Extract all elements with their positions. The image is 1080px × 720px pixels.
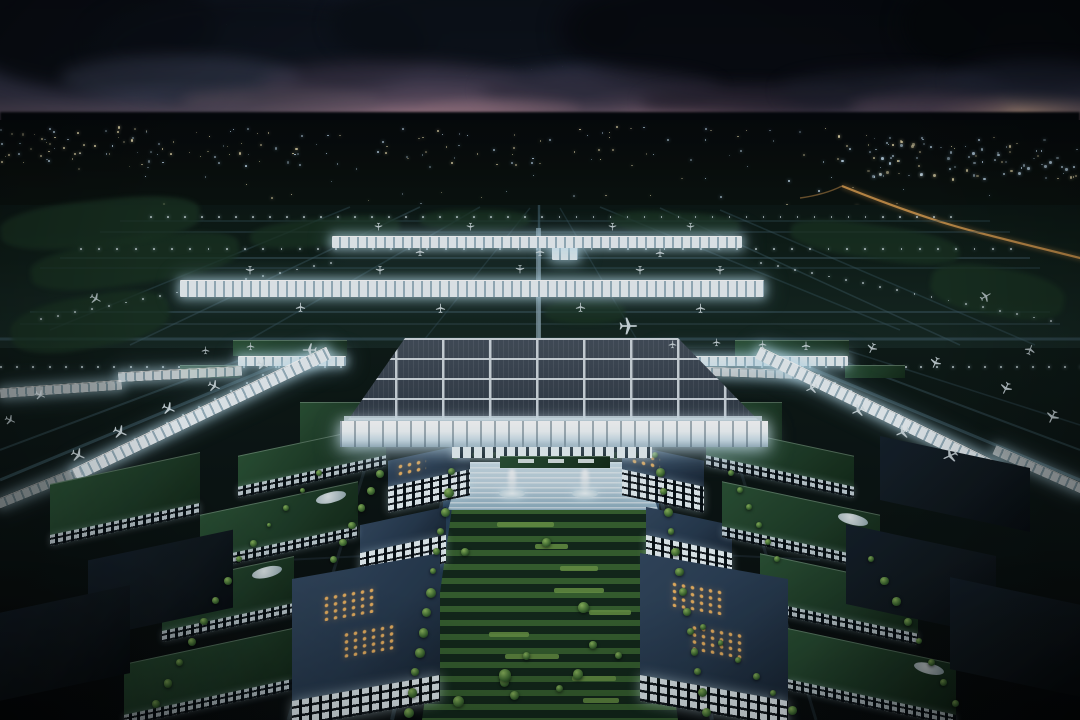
- apron-edge-light: [445, 248, 447, 250]
- pavilion-skylight: [578, 459, 594, 463]
- aircraft-icon: [201, 346, 210, 355]
- city-light: [896, 203, 898, 205]
- city-light: [890, 157, 892, 159]
- hedge-block: [505, 654, 559, 659]
- boulevard-tree: [367, 487, 375, 495]
- city-light: [402, 128, 404, 130]
- apron-edge-light: [473, 216, 475, 218]
- city-light: [831, 177, 832, 178]
- city-light: [533, 175, 534, 176]
- apron-edge-light: [1050, 320, 1052, 322]
- apron-edge-light: [1016, 313, 1018, 315]
- boulevard-tree: [928, 659, 935, 666]
- apron-edge-light: [81, 366, 83, 368]
- city-light: [49, 128, 51, 130]
- hedge-block: [560, 566, 598, 571]
- city-light: [1044, 165, 1046, 167]
- city-light: [532, 158, 533, 159]
- city-light: [287, 161, 289, 163]
- city-light: [146, 131, 147, 132]
- boulevard-tree: [765, 539, 771, 545]
- city-light: [46, 142, 47, 143]
- apron-edge-light: [576, 216, 578, 218]
- city-light: [973, 174, 975, 176]
- apron-edge-light: [761, 366, 763, 368]
- garden-tree: [499, 669, 512, 682]
- city-light: [837, 158, 838, 159]
- aircraft-icon: [415, 247, 425, 257]
- city-light: [612, 149, 614, 151]
- city-light: [112, 145, 113, 146]
- city-light: [425, 151, 427, 153]
- apron-edge-light: [773, 248, 775, 250]
- apron-edge-light: [1010, 248, 1012, 250]
- apron-edge-light: [916, 216, 918, 218]
- apron-edge-light: [982, 306, 984, 308]
- apron-edge-light: [153, 248, 155, 250]
- boulevard-tree: [679, 588, 687, 596]
- city-light: [511, 162, 513, 164]
- city-light: [260, 144, 262, 146]
- boulevard-tree: [419, 628, 429, 638]
- city-light: [609, 132, 610, 133]
- apron-edge-light: [371, 216, 373, 218]
- apron-edge-light: [130, 366, 132, 368]
- city-light: [420, 203, 421, 204]
- apron-edge-light: [644, 216, 646, 218]
- boulevard-tree: [940, 679, 947, 686]
- airport-night-render: [0, 0, 1080, 720]
- city-light: [838, 135, 840, 137]
- cloud: [180, 88, 380, 114]
- apron-edge-light: [439, 216, 441, 218]
- apron-edge-light: [841, 366, 843, 368]
- boulevard-tree: [892, 597, 901, 606]
- city-light: [74, 153, 75, 154]
- aircraft-icon: [715, 265, 725, 275]
- apron-edge-light: [184, 216, 186, 218]
- city-light: [976, 175, 979, 178]
- apron-edge-light: [337, 216, 339, 218]
- boulevard-tree: [200, 618, 208, 626]
- apron-edge-light: [57, 315, 59, 317]
- apron-edge-light: [919, 248, 921, 250]
- city-light: [214, 156, 216, 158]
- aircraft-icon: [295, 302, 306, 313]
- city-light: [788, 180, 789, 181]
- apron-edge-light: [846, 248, 848, 250]
- city-light: [866, 135, 867, 136]
- apron-edge-light: [541, 216, 543, 218]
- city-light: [22, 133, 24, 135]
- city-light: [949, 168, 951, 170]
- city-light: [40, 155, 42, 157]
- apron-edge-light: [252, 216, 254, 218]
- boulevard-tree: [656, 468, 665, 477]
- apron-edge-light: [610, 216, 612, 218]
- city-light: [77, 132, 79, 134]
- boulevard-tree: [753, 673, 760, 680]
- city-light: [587, 135, 588, 136]
- aircraft-icon: [686, 222, 695, 231]
- boulevard-tree: [652, 452, 658, 458]
- city-light: [799, 131, 801, 133]
- apron-edge-light: [825, 366, 827, 368]
- city-light: [63, 147, 65, 149]
- city-light: [23, 162, 24, 163]
- apron-edge-light: [135, 248, 137, 250]
- aircraft-icon: [374, 222, 383, 231]
- city-light: [131, 139, 133, 141]
- apron-edge-light: [317, 248, 319, 250]
- apron-edge-light: [0, 366, 2, 368]
- city-light: [368, 200, 369, 201]
- apron-edge-light: [65, 366, 67, 368]
- city-light: [44, 139, 45, 140]
- city-light: [918, 165, 920, 167]
- apron-edge-light: [791, 248, 793, 250]
- boulevard-tree: [691, 648, 699, 656]
- apron-edge-light: [244, 248, 246, 250]
- city-light: [129, 166, 130, 167]
- city-light: [134, 128, 136, 130]
- apron-edge-light: [335, 248, 337, 250]
- apron-edge-light: [171, 248, 173, 250]
- apron-edge-light: [882, 248, 884, 250]
- apron-edge-light: [879, 286, 881, 288]
- boulevard-tree: [188, 638, 196, 646]
- garden-tree: [510, 691, 519, 700]
- apron-edge-light: [965, 303, 967, 305]
- apron-edge-light: [609, 248, 611, 250]
- city-light: [158, 143, 160, 145]
- apron-edge-light: [243, 366, 245, 368]
- boulevard-tree: [411, 668, 419, 676]
- city-light: [105, 130, 107, 132]
- fountain-spray: [581, 469, 589, 493]
- city-light: [973, 162, 975, 164]
- aircraft-icon: [618, 316, 638, 336]
- city-light: [275, 147, 277, 149]
- apron-edge-light: [507, 216, 509, 218]
- city-light: [326, 153, 327, 154]
- city-light: [898, 173, 899, 174]
- city-light: [994, 159, 996, 161]
- city-light: [605, 195, 606, 196]
- city-light: [506, 191, 507, 192]
- aircraft-icon: [608, 222, 617, 231]
- apron-edge-light: [226, 248, 228, 250]
- apron-edge-light: [682, 248, 684, 250]
- apron-edge-light: [262, 248, 264, 250]
- hedge-block: [535, 544, 568, 549]
- boulevard-tree: [164, 679, 172, 687]
- city-light: [1023, 164, 1026, 167]
- apron-edge-light: [593, 216, 595, 218]
- city-light: [1033, 158, 1034, 159]
- boulevard-tree: [675, 568, 683, 576]
- city-light: [268, 132, 270, 134]
- aircraft-icon: [575, 302, 586, 313]
- apron-edge-light: [490, 216, 492, 218]
- apron-edge-light: [718, 248, 720, 250]
- apron-edge-light: [262, 275, 264, 277]
- apron-edge-light: [661, 216, 663, 218]
- apron-edge-light: [864, 248, 866, 250]
- apron-edge-light: [627, 216, 629, 218]
- hedge-block: [497, 522, 554, 527]
- city-light: [710, 130, 712, 132]
- aircraft-icon: [466, 222, 475, 231]
- garden-tree: [615, 652, 622, 659]
- concourse-service-block: [552, 246, 578, 260]
- terminal-facade: [340, 421, 768, 447]
- apron-edge-light: [372, 248, 374, 250]
- apron-edge-light: [159, 295, 161, 297]
- boulevard-tree: [250, 540, 257, 547]
- boulevard-tree: [664, 508, 673, 517]
- city-light: [145, 176, 146, 177]
- city-light: [230, 131, 231, 132]
- apron-edge-light: [882, 216, 884, 218]
- city-light: [1061, 166, 1063, 168]
- city-light: [1018, 172, 1021, 175]
- city-light: [454, 157, 455, 158]
- boulevard-tree: [415, 648, 425, 658]
- city-light: [841, 160, 843, 162]
- apron-edge-light: [933, 216, 935, 218]
- apron-edge-light: [408, 248, 410, 250]
- city-light: [849, 148, 851, 150]
- city-light: [162, 148, 163, 149]
- aircraft-icon: [635, 265, 645, 275]
- apron-edge-light: [388, 216, 390, 218]
- city-light: [872, 175, 875, 178]
- city-light: [1075, 175, 1077, 177]
- city-light: [598, 149, 600, 151]
- apron-edge-light: [463, 248, 465, 250]
- apron-edge-light: [303, 216, 305, 218]
- city-light: [209, 136, 210, 137]
- aircraft-icon: [435, 303, 446, 314]
- city-light: [54, 148, 55, 149]
- city-light: [1065, 168, 1067, 170]
- city-light: [981, 148, 983, 150]
- city-light: [132, 137, 134, 139]
- boulevard-tree: [426, 588, 436, 598]
- aircraft-icon: [246, 342, 255, 351]
- city-light: [402, 193, 403, 194]
- aircraft-icon: [515, 264, 525, 274]
- pavilion-skylight: [548, 459, 564, 463]
- apron-edge-light: [49, 366, 51, 368]
- boulevard-tree: [348, 522, 356, 530]
- apron-edge-light: [811, 272, 813, 274]
- city-light: [867, 170, 869, 172]
- city-light: [513, 147, 515, 149]
- city-light: [94, 145, 95, 146]
- apron-edge-light: [627, 248, 629, 250]
- apron-edge-light: [40, 318, 42, 320]
- garden-tree: [523, 652, 531, 660]
- apron-edge-light: [899, 216, 901, 218]
- aircraft-icon: [375, 265, 385, 275]
- city-light: [1005, 161, 1007, 163]
- city-light: [137, 152, 138, 153]
- apron-edge-light: [269, 216, 271, 218]
- city-light: [200, 156, 201, 157]
- aircraft-icon: [758, 340, 767, 349]
- city-light: [531, 162, 533, 164]
- city-light: [1073, 166, 1075, 168]
- city-light: [947, 157, 950, 160]
- city-light: [616, 126, 618, 128]
- green-roof-gallery: [735, 340, 849, 356]
- city-light: [245, 165, 247, 167]
- apron-edge-light: [992, 248, 994, 250]
- garden-tree: [453, 696, 464, 707]
- city-light: [493, 149, 495, 151]
- city-light: [880, 167, 881, 168]
- apron-edge-light: [999, 310, 1001, 312]
- city-light: [881, 157, 884, 160]
- city-light: [690, 159, 692, 161]
- city-light: [883, 175, 885, 177]
- city-light: [1056, 157, 1059, 160]
- infield-grass: [420, 210, 530, 230]
- city-light: [803, 154, 805, 156]
- city-light: [978, 139, 980, 141]
- boulevard-tree: [868, 556, 874, 562]
- city-light: [549, 139, 550, 140]
- boulevard-tree: [880, 577, 889, 586]
- city-light: [705, 128, 707, 130]
- boulevard-tree: [433, 548, 440, 555]
- aircraft-icon: [302, 342, 318, 358]
- boulevard-tree: [788, 706, 797, 715]
- city-light: [643, 127, 644, 128]
- city-light: [868, 144, 870, 146]
- apron-edge-light: [845, 279, 847, 281]
- apron-edge-light: [456, 216, 458, 218]
- city-light: [892, 144, 894, 146]
- city-light: [79, 152, 81, 154]
- city-light: [653, 154, 654, 155]
- apron-edge-light: [201, 216, 203, 218]
- city-light: [983, 178, 985, 180]
- garden-tree: [461, 548, 469, 556]
- city-light: [377, 151, 379, 153]
- apron-edge-light: [481, 248, 483, 250]
- apron-edge-light: [955, 248, 957, 250]
- apron-edge-light: [108, 305, 110, 307]
- apron-edge-light: [559, 216, 561, 218]
- apron-edge-light: [760, 262, 762, 264]
- apron-edge-light: [330, 262, 332, 264]
- apron-edge-light: [755, 248, 757, 250]
- city-light: [271, 197, 273, 199]
- apron-edge-light: [340, 366, 342, 368]
- hedge-block: [489, 632, 529, 637]
- boulevard-tree: [700, 624, 706, 630]
- city-light: [150, 151, 152, 153]
- green-roof-gallery: [845, 365, 905, 378]
- aircraft-icon: [712, 338, 721, 347]
- city-light: [1027, 167, 1029, 169]
- boulevard-tree: [408, 688, 418, 698]
- apron-edge-light: [279, 272, 281, 274]
- apron-edge-light: [645, 248, 647, 250]
- apron-edge-light: [299, 248, 301, 250]
- apron-edge-light: [150, 216, 152, 218]
- city-light: [1016, 143, 1018, 145]
- city-light: [170, 153, 172, 155]
- city-light: [382, 141, 384, 143]
- apron-edge-light: [167, 216, 169, 218]
- city-light: [117, 131, 118, 132]
- apron-edge-light: [98, 248, 100, 250]
- aircraft-icon: [245, 265, 255, 275]
- boulevard-tree: [300, 488, 305, 493]
- city-light: [886, 171, 889, 174]
- boulevard-tree: [176, 659, 183, 666]
- city-light: [8, 154, 10, 156]
- apron-edge-light: [313, 265, 315, 267]
- garden-tree: [589, 641, 596, 648]
- apron-edge-light: [678, 216, 680, 218]
- boulevard-tree: [358, 504, 365, 511]
- city-light: [477, 153, 478, 154]
- campus-building-12: [292, 553, 440, 720]
- aircraft-icon: [801, 341, 811, 351]
- apron-edge-light: [794, 269, 796, 271]
- city-light: [241, 143, 242, 144]
- city-light: [123, 141, 125, 143]
- boulevard-tree: [236, 556, 242, 562]
- city-light: [920, 173, 922, 175]
- city-light: [41, 138, 42, 139]
- apron-edge-light: [524, 216, 526, 218]
- city-light: [930, 146, 932, 148]
- apron-edge-light: [809, 366, 811, 368]
- garden-tree: [573, 669, 583, 679]
- city-light: [118, 126, 120, 128]
- city-light: [0, 129, 2, 131]
- city-light: [889, 162, 891, 164]
- boulevard-tree: [339, 539, 346, 546]
- apron-edge-light: [354, 216, 356, 218]
- garden-tree: [556, 685, 563, 692]
- aircraft-icon: [535, 247, 545, 257]
- apron-edge-light: [405, 216, 407, 218]
- city-light: [48, 160, 50, 162]
- apron-edge-light: [422, 216, 424, 218]
- city-light: [422, 154, 424, 156]
- garden-tree: [578, 602, 589, 613]
- city-light: [1057, 178, 1059, 180]
- city-light: [1041, 164, 1042, 165]
- apron-edge-light: [700, 248, 702, 250]
- apron-edge-light: [91, 308, 93, 310]
- city-light: [933, 174, 936, 177]
- city-light: [916, 157, 918, 159]
- apron-edge-light: [950, 216, 952, 218]
- apron-edge-light: [390, 248, 392, 250]
- aircraft-icon: [655, 248, 665, 258]
- city-light: [53, 131, 55, 133]
- city-light: [1073, 176, 1074, 177]
- boulevard-tree: [668, 528, 675, 535]
